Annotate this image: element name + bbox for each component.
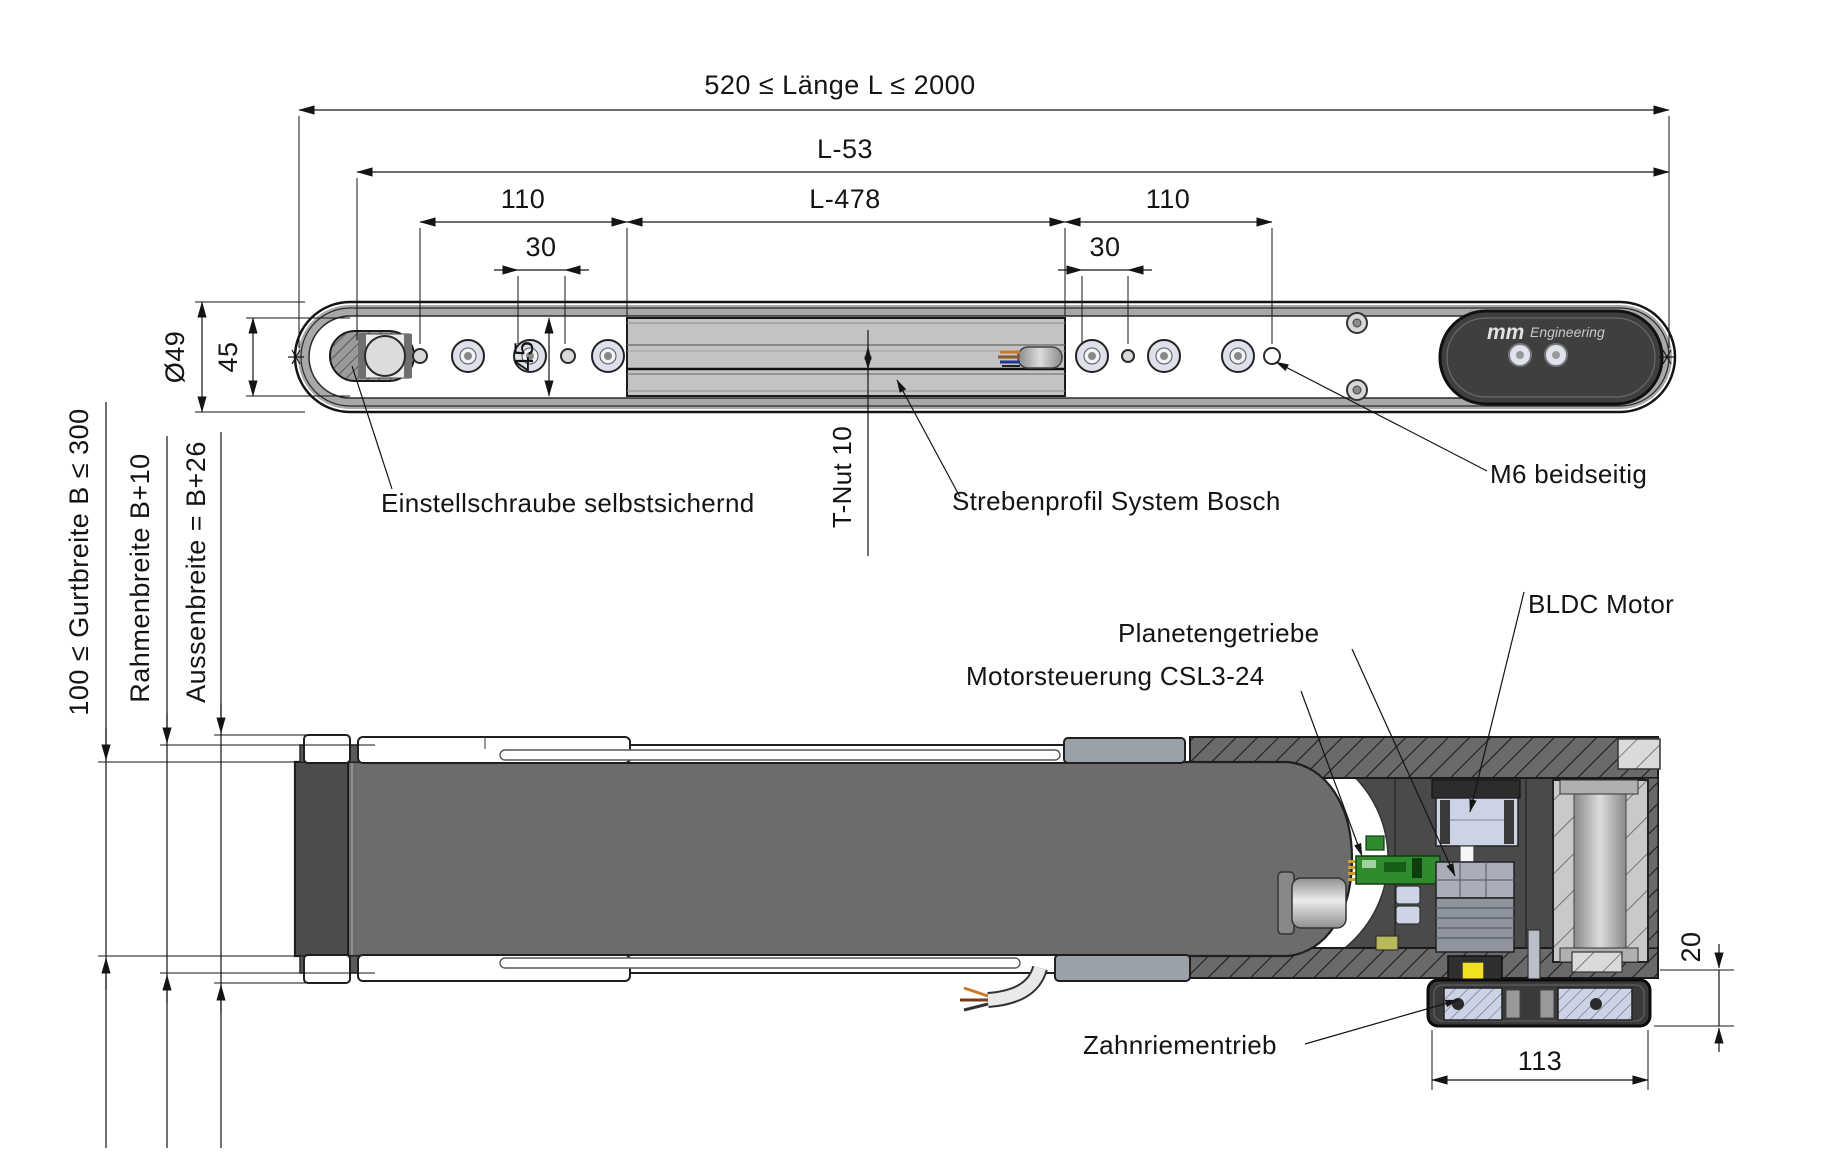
pilot-hole: [561, 349, 575, 363]
socket-screw: [452, 340, 484, 372]
drive-end-cap: mm Engineering: [1440, 311, 1662, 404]
adjusting-screw-slot: [330, 331, 414, 381]
dim-110-left: 110: [501, 184, 546, 214]
pilot-hole: [1122, 350, 1134, 362]
technical-drawing-canvas: mm Engineering: [0, 0, 1828, 1156]
label-m6: M6 beidseitig: [1490, 459, 1647, 489]
dim-45-mid: 45: [509, 340, 539, 371]
label-planetary-gear: Planetengetriebe: [1118, 618, 1319, 648]
dim-l478: L-478: [809, 184, 881, 214]
pilot-hole: [413, 349, 427, 363]
dim-20: 20: [1676, 931, 1706, 962]
top-view: mm Engineering: [288, 302, 1675, 412]
small-component: [1376, 936, 1398, 950]
socket-screw: [592, 340, 624, 372]
dim-overall-length: 520 ≤ Länge L ≤ 2000: [704, 70, 975, 100]
spacer-block: [1572, 952, 1622, 972]
socket-screw: [1148, 340, 1180, 372]
adjusting-screw-head: [365, 336, 405, 376]
cap-screw: [1545, 344, 1567, 366]
belt-guide: [1540, 990, 1554, 1018]
label-motor-controller: Motorsteuerung CSL3-24: [966, 661, 1265, 691]
tension-screw: [1528, 930, 1540, 986]
dim-belt-width: 100 ≤ Gurtbreite B ≤ 300: [64, 408, 94, 715]
rail-tab-gray: [1055, 955, 1190, 981]
corner-block: [1618, 739, 1660, 769]
dim-45: 45: [213, 341, 243, 372]
rail-tab: [304, 955, 350, 983]
label-strut-profile: Strebenprofil System Bosch: [952, 486, 1281, 516]
strut-profile: [627, 318, 1065, 396]
cap-screw: [1509, 344, 1531, 366]
drive-roller: [1553, 780, 1648, 962]
rail-channel: [500, 750, 1060, 760]
socket-screw: [1222, 340, 1254, 372]
label-t-slot: T-Nut 10: [827, 426, 857, 528]
logo-engineering: Engineering: [1530, 324, 1605, 340]
capacitor: [1396, 906, 1420, 924]
dim-l53: L-53: [817, 134, 873, 164]
planetary-gearbox: [1436, 862, 1514, 952]
dim-30-right: 30: [1089, 232, 1120, 262]
conveyor-drawing: mm Engineering: [0, 0, 1828, 1156]
corner-screw: [1347, 380, 1367, 400]
rail-channel: [500, 958, 1020, 968]
rail-tab-gray: [1064, 738, 1185, 763]
conveyor-belt: [295, 762, 1352, 956]
label-adjusting-screw: Einstellschraube selbstsichernd: [381, 488, 755, 518]
dim-diameter-49: Ø49: [160, 331, 190, 384]
dim-113: 113: [1518, 1046, 1563, 1076]
cable-gland: [1278, 872, 1346, 934]
belt-guide: [1506, 990, 1520, 1018]
rail-tab: [304, 735, 350, 763]
tail-roller: [295, 762, 348, 956]
dim-30-left: 30: [525, 232, 556, 262]
socket-screw: [1076, 340, 1108, 372]
dim-frame-width: Rahmenbreite B+10: [125, 453, 155, 702]
dim-outer-width: Aussenbreite = B+26: [181, 441, 211, 703]
dim-110-right: 110: [1146, 184, 1191, 214]
label-timing-belt: Zahnriementrieb: [1083, 1030, 1277, 1060]
logo-mm: mm: [1487, 321, 1524, 344]
m6-hole: [1264, 348, 1280, 364]
label-bldc-motor: BLDC Motor: [1528, 589, 1674, 619]
corner-screw: [1347, 313, 1367, 333]
capacitor: [1396, 886, 1420, 904]
